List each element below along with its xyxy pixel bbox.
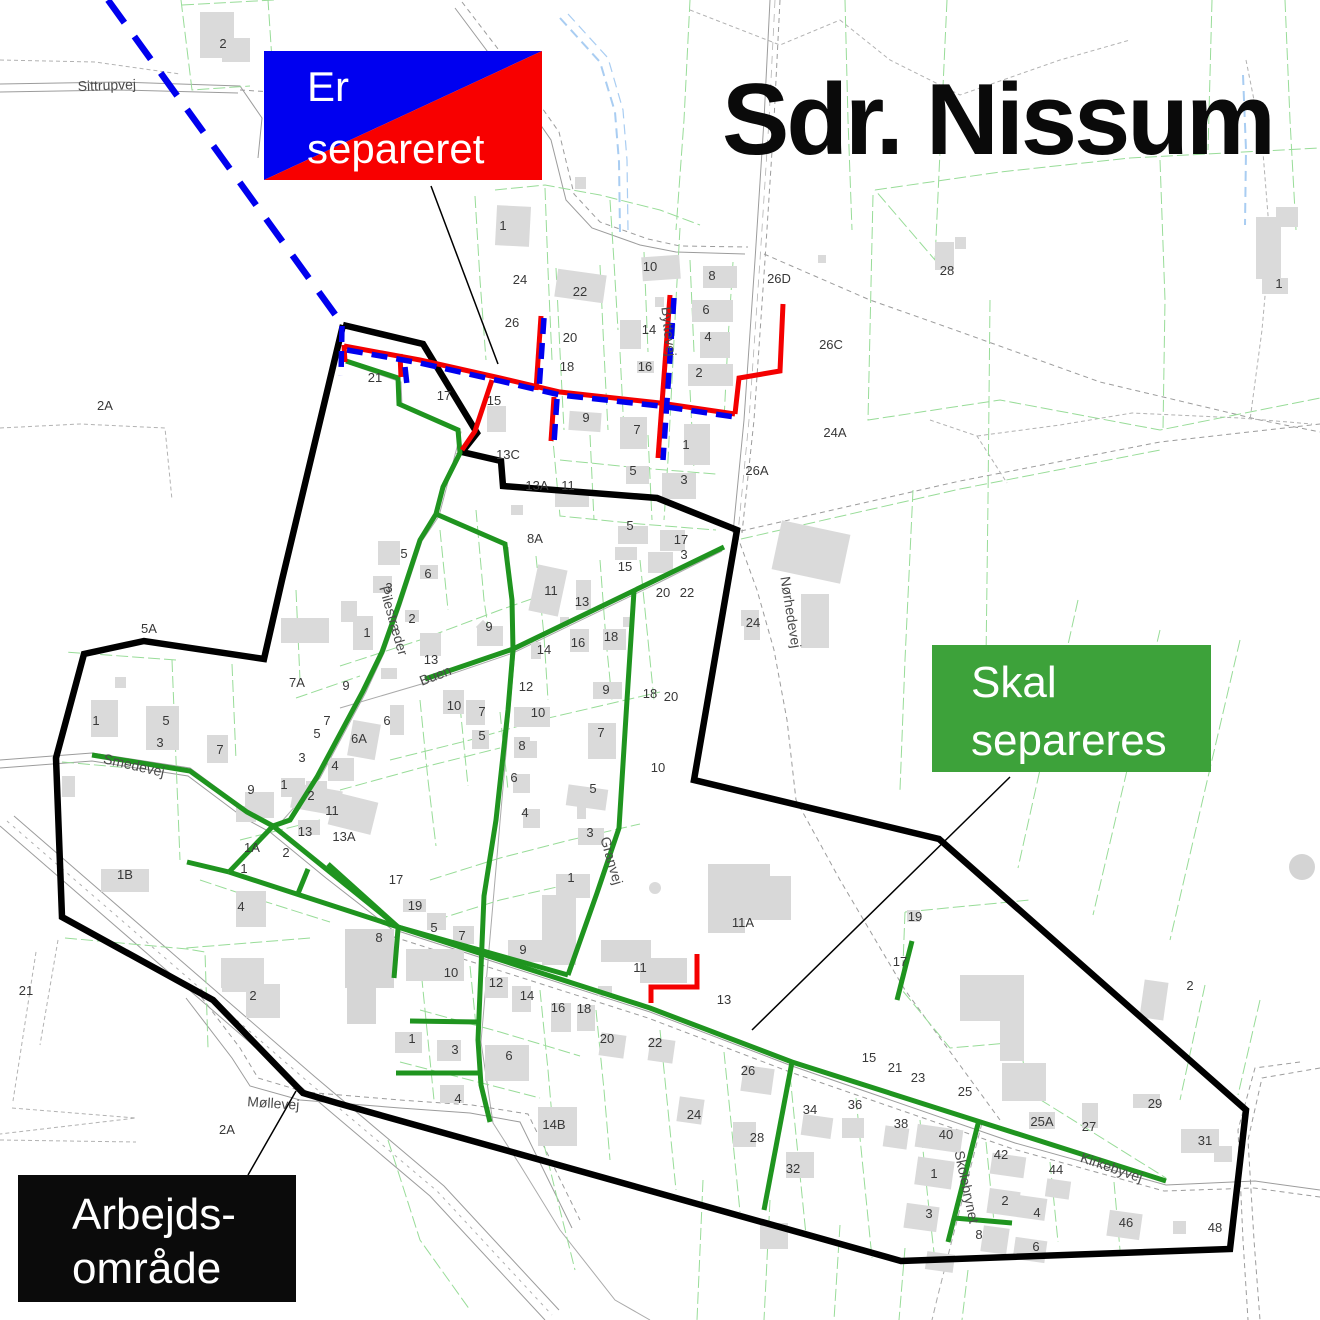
svg-text:18: 18	[577, 1001, 591, 1016]
svg-text:6: 6	[510, 770, 517, 785]
svg-text:5: 5	[313, 726, 320, 741]
svg-text:1: 1	[682, 437, 689, 452]
svg-text:6: 6	[424, 566, 431, 581]
svg-text:6: 6	[383, 713, 390, 728]
svg-text:20: 20	[563, 330, 577, 345]
svg-text:29: 29	[1148, 1096, 1162, 1111]
svg-text:26C: 26C	[819, 337, 843, 352]
svg-text:31: 31	[1198, 1133, 1212, 1148]
svg-text:1: 1	[1275, 276, 1282, 291]
svg-text:14: 14	[520, 988, 534, 1003]
svg-text:23: 23	[911, 1070, 925, 1085]
svg-text:32: 32	[786, 1161, 800, 1176]
svg-text:13: 13	[298, 824, 312, 839]
svg-text:22: 22	[648, 1035, 662, 1050]
svg-text:10: 10	[444, 965, 458, 980]
svg-text:separeret: separeret	[307, 125, 485, 172]
svg-text:5: 5	[400, 546, 407, 561]
svg-text:4: 4	[1033, 1205, 1040, 1220]
svg-text:2: 2	[282, 845, 289, 860]
svg-text:40: 40	[939, 1127, 953, 1142]
svg-text:20: 20	[664, 689, 678, 704]
svg-text:21: 21	[368, 370, 382, 385]
svg-text:2: 2	[1186, 978, 1193, 993]
svg-text:Skal: Skal	[971, 658, 1057, 707]
svg-text:12: 12	[489, 975, 503, 990]
svg-text:1: 1	[363, 625, 370, 640]
svg-text:3: 3	[680, 472, 687, 487]
svg-text:24: 24	[513, 272, 527, 287]
svg-text:25: 25	[958, 1084, 972, 1099]
svg-text:5A: 5A	[141, 621, 157, 636]
svg-text:1: 1	[567, 870, 574, 885]
svg-text:18: 18	[560, 359, 574, 374]
svg-text:17: 17	[674, 532, 688, 547]
svg-text:2: 2	[249, 988, 256, 1003]
svg-text:26D: 26D	[767, 271, 791, 286]
svg-text:22: 22	[680, 585, 694, 600]
svg-text:8: 8	[518, 738, 525, 753]
svg-text:3: 3	[385, 580, 392, 595]
svg-text:3: 3	[680, 547, 687, 562]
svg-text:Arbejds-: Arbejds-	[72, 1190, 236, 1239]
svg-text:16: 16	[551, 1000, 565, 1015]
svg-text:4: 4	[521, 805, 528, 820]
svg-text:10: 10	[531, 705, 545, 720]
svg-text:9: 9	[602, 682, 609, 697]
svg-text:14: 14	[537, 642, 551, 657]
svg-text:12: 12	[519, 679, 533, 694]
svg-text:24A: 24A	[823, 425, 846, 440]
svg-text:7: 7	[478, 704, 485, 719]
svg-text:1: 1	[930, 1166, 937, 1181]
svg-text:1: 1	[408, 1031, 415, 1046]
svg-text:6A: 6A	[351, 731, 367, 746]
svg-text:1B: 1B	[117, 867, 133, 882]
svg-text:Sittrupvej: Sittrupvej	[77, 76, 136, 94]
svg-text:7: 7	[633, 422, 640, 437]
svg-text:Sdr. Nissum: Sdr. Nissum	[722, 64, 1273, 176]
svg-text:3: 3	[298, 750, 305, 765]
svg-text:1: 1	[280, 777, 287, 792]
svg-text:5: 5	[629, 463, 636, 478]
svg-text:4: 4	[704, 329, 711, 344]
svg-text:15: 15	[862, 1050, 876, 1065]
svg-text:19: 19	[908, 909, 922, 924]
svg-text:9: 9	[582, 410, 589, 425]
svg-text:17: 17	[893, 954, 907, 969]
svg-text:13: 13	[717, 992, 731, 1007]
svg-text:13: 13	[575, 594, 589, 609]
svg-text:20: 20	[600, 1031, 614, 1046]
svg-text:9: 9	[342, 678, 349, 693]
svg-text:7: 7	[597, 725, 604, 740]
svg-text:15: 15	[618, 559, 632, 574]
svg-text:22: 22	[573, 284, 587, 299]
svg-text:11: 11	[325, 803, 339, 818]
svg-text:8A: 8A	[527, 531, 543, 546]
svg-text:46: 46	[1119, 1215, 1133, 1230]
svg-text:26: 26	[505, 315, 519, 330]
svg-text:5: 5	[626, 518, 633, 533]
svg-text:Er: Er	[307, 63, 349, 110]
svg-text:7: 7	[216, 742, 223, 757]
svg-text:område: område	[72, 1244, 221, 1293]
svg-text:5: 5	[162, 713, 169, 728]
svg-text:18: 18	[643, 686, 657, 701]
svg-text:13C: 13C	[496, 447, 520, 462]
svg-text:6: 6	[1032, 1239, 1039, 1254]
svg-text:15: 15	[487, 393, 501, 408]
svg-text:5: 5	[589, 781, 596, 796]
svg-text:2: 2	[1001, 1193, 1008, 1208]
svg-text:1: 1	[92, 713, 99, 728]
svg-text:24: 24	[687, 1107, 701, 1122]
svg-text:6: 6	[505, 1048, 512, 1063]
svg-text:19: 19	[408, 898, 422, 913]
svg-text:13: 13	[424, 652, 438, 667]
svg-text:16: 16	[571, 635, 585, 650]
svg-text:5: 5	[478, 728, 485, 743]
svg-text:44: 44	[1049, 1162, 1063, 1177]
svg-text:1A: 1A	[244, 840, 260, 855]
svg-text:10: 10	[447, 698, 461, 713]
svg-text:3: 3	[586, 825, 593, 840]
svg-text:24: 24	[746, 615, 760, 630]
svg-text:14B: 14B	[542, 1117, 565, 1132]
svg-text:separeres: separeres	[971, 716, 1167, 765]
svg-text:16: 16	[638, 359, 652, 374]
svg-text:9: 9	[519, 942, 526, 957]
svg-text:2A: 2A	[97, 398, 113, 413]
svg-text:21: 21	[19, 983, 33, 998]
svg-text:42: 42	[994, 1147, 1008, 1162]
svg-text:28: 28	[940, 263, 954, 278]
svg-text:28: 28	[750, 1130, 764, 1145]
svg-text:8: 8	[375, 930, 382, 945]
svg-text:20: 20	[656, 585, 670, 600]
svg-text:3: 3	[156, 735, 163, 750]
svg-text:4: 4	[237, 899, 244, 914]
svg-text:25A: 25A	[1030, 1114, 1053, 1129]
svg-text:7: 7	[323, 713, 330, 728]
svg-text:26A: 26A	[745, 463, 768, 478]
svg-text:7A: 7A	[289, 675, 305, 690]
svg-text:3: 3	[925, 1206, 932, 1221]
svg-text:8: 8	[708, 268, 715, 283]
svg-text:9: 9	[247, 782, 254, 797]
svg-text:10: 10	[651, 760, 665, 775]
svg-text:10: 10	[643, 259, 657, 274]
svg-text:2: 2	[695, 365, 702, 380]
svg-text:1: 1	[499, 218, 506, 233]
svg-text:36: 36	[848, 1097, 862, 1112]
svg-text:48: 48	[1208, 1220, 1222, 1235]
svg-text:11: 11	[561, 478, 575, 493]
svg-text:17: 17	[389, 872, 403, 887]
svg-text:18: 18	[604, 629, 618, 644]
svg-text:8: 8	[975, 1227, 982, 1242]
svg-text:26: 26	[741, 1063, 755, 1078]
svg-text:14: 14	[642, 322, 656, 337]
svg-text:9: 9	[485, 619, 492, 634]
svg-text:2: 2	[219, 36, 226, 51]
svg-text:13A: 13A	[525, 478, 548, 493]
svg-text:17: 17	[437, 388, 451, 403]
svg-text:34: 34	[803, 1102, 817, 1117]
svg-text:5: 5	[430, 920, 437, 935]
svg-text:6: 6	[702, 302, 709, 317]
svg-text:2: 2	[307, 788, 314, 803]
svg-text:1: 1	[240, 861, 247, 876]
svg-text:2A: 2A	[219, 1122, 235, 1137]
svg-text:4: 4	[454, 1091, 461, 1106]
svg-text:11A: 11A	[732, 915, 754, 930]
svg-text:3: 3	[451, 1042, 458, 1057]
svg-text:21: 21	[888, 1060, 902, 1075]
svg-text:4: 4	[331, 758, 338, 773]
svg-text:13A: 13A	[332, 829, 355, 844]
svg-text:2: 2	[408, 611, 415, 626]
svg-text:11: 11	[544, 583, 558, 598]
svg-text:27: 27	[1082, 1119, 1096, 1134]
svg-text:11: 11	[633, 960, 647, 975]
svg-text:38: 38	[894, 1116, 908, 1131]
svg-text:7: 7	[458, 928, 465, 943]
